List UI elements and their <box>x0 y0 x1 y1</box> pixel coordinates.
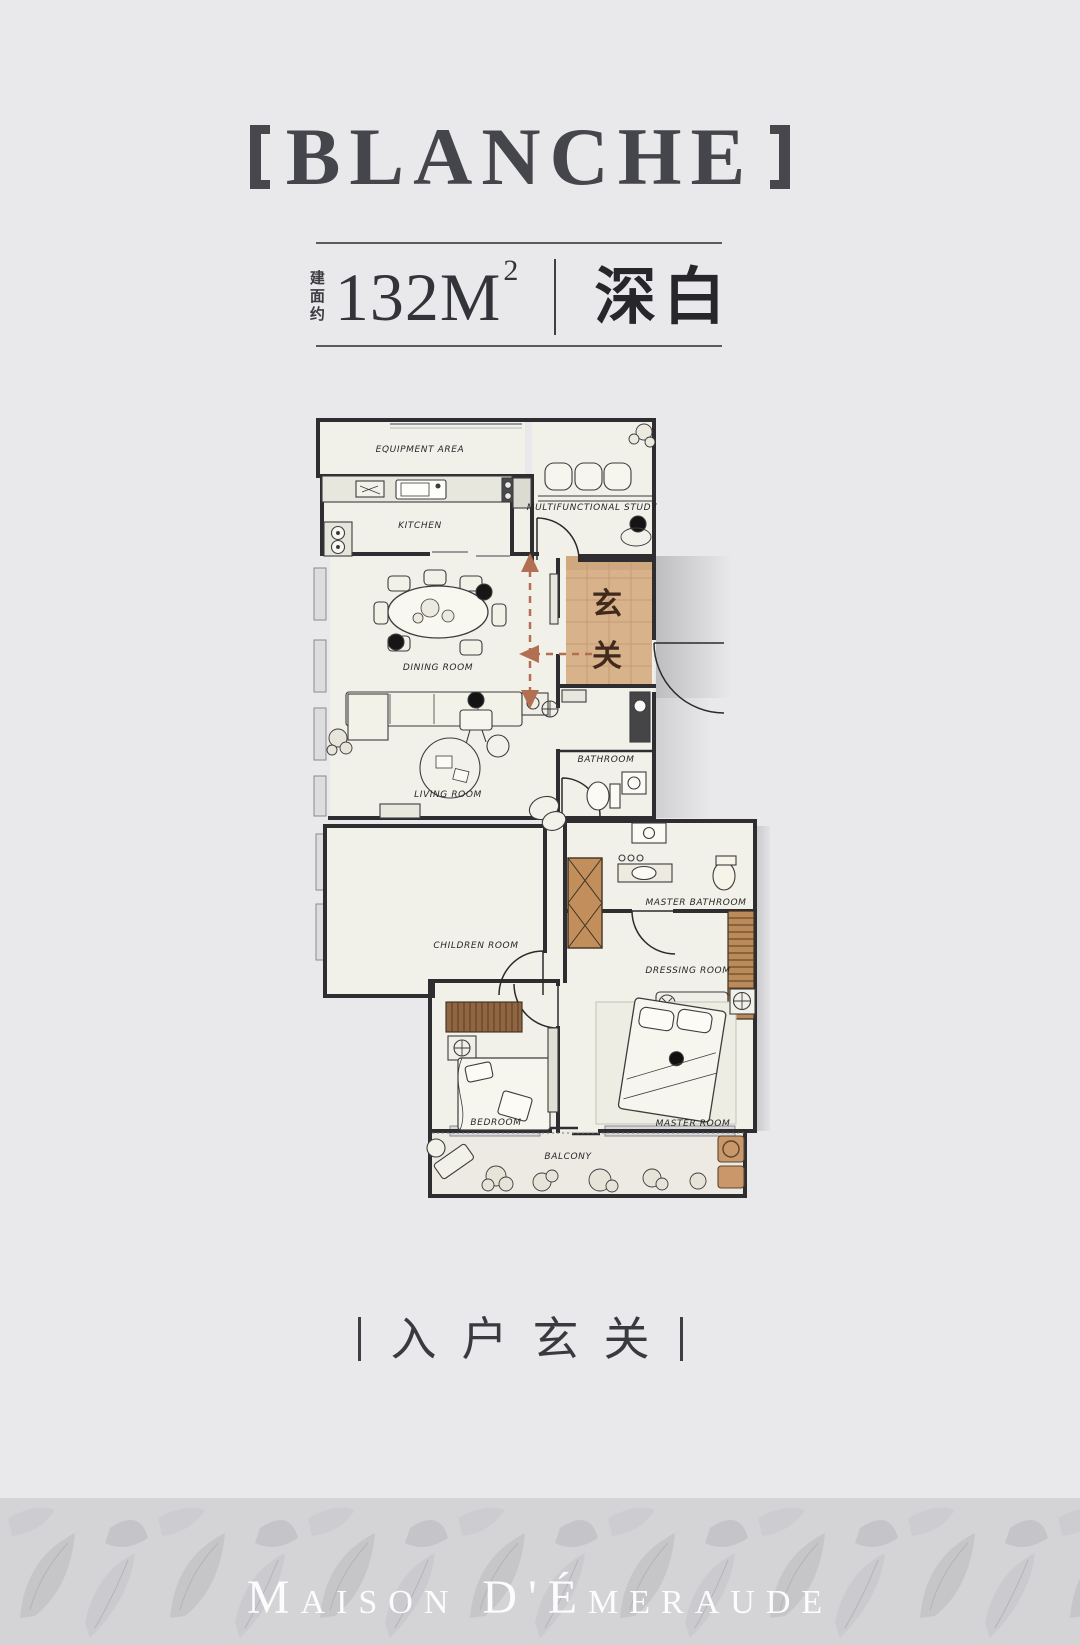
spec-row: 建面约 132M 2 深白 <box>0 250 1040 344</box>
poster-page: BLANCHE 建面约 132M 2 深白 <box>0 0 1080 1645</box>
tagline-bar-left <box>358 1317 361 1361</box>
floorplan-svg: 玄 关 EQUIPMENT AREA KITCHEN MULTIFUNCTION… <box>300 406 770 1206</box>
room-label-living: LIVING ROOM <box>414 790 482 800</box>
tagline-bar-right <box>680 1317 683 1361</box>
room-label-bathroom: BATHROOM <box>578 755 635 765</box>
spec-divider-bar <box>554 259 556 335</box>
area-value: 132M <box>335 263 501 331</box>
area-superscript: 2 <box>503 254 518 288</box>
scheme-name: 深白 <box>594 266 732 328</box>
footer-band: Maison D'Émeraude <box>0 1498 1080 1645</box>
divider-top <box>316 242 722 244</box>
entry-char-top: 玄 <box>592 587 622 622</box>
room-label-equipment-area: EQUIPMENT AREA <box>376 445 465 455</box>
title-text: BLANCHE <box>286 116 755 198</box>
divider-bottom <box>316 345 722 347</box>
room-label-children-room: CHILDREN ROOM <box>433 941 518 951</box>
room-label-bedroom: BEDROOM <box>470 1118 521 1128</box>
room-label-dining: DINING ROOM <box>403 663 473 673</box>
tagline: 入户玄关 <box>0 1316 1040 1362</box>
room-label-dressing-room: DRESSING ROOM <box>645 966 730 976</box>
title-bracket-right-icon <box>770 125 790 189</box>
brand-name: Maison D'Émeraude <box>0 1570 1080 1625</box>
room-label-study: MULTIFUNCTIONAL STUDY <box>527 503 658 513</box>
tagline-text: 入户玄关 <box>391 1316 675 1362</box>
entry-char-bottom: 关 <box>592 639 622 674</box>
room-label-kitchen: KITCHEN <box>398 521 442 531</box>
title-bracket-left-icon <box>250 125 270 189</box>
area-prefix-label: 建面约 <box>308 270 325 324</box>
room-label-balcony: BALCONY <box>544 1152 592 1162</box>
room-label-master-bathroom: MASTER BATHROOM <box>645 898 746 908</box>
room-label-master-room: MASTER ROOM <box>656 1119 731 1129</box>
page-title: BLANCHE <box>0 116 1040 198</box>
